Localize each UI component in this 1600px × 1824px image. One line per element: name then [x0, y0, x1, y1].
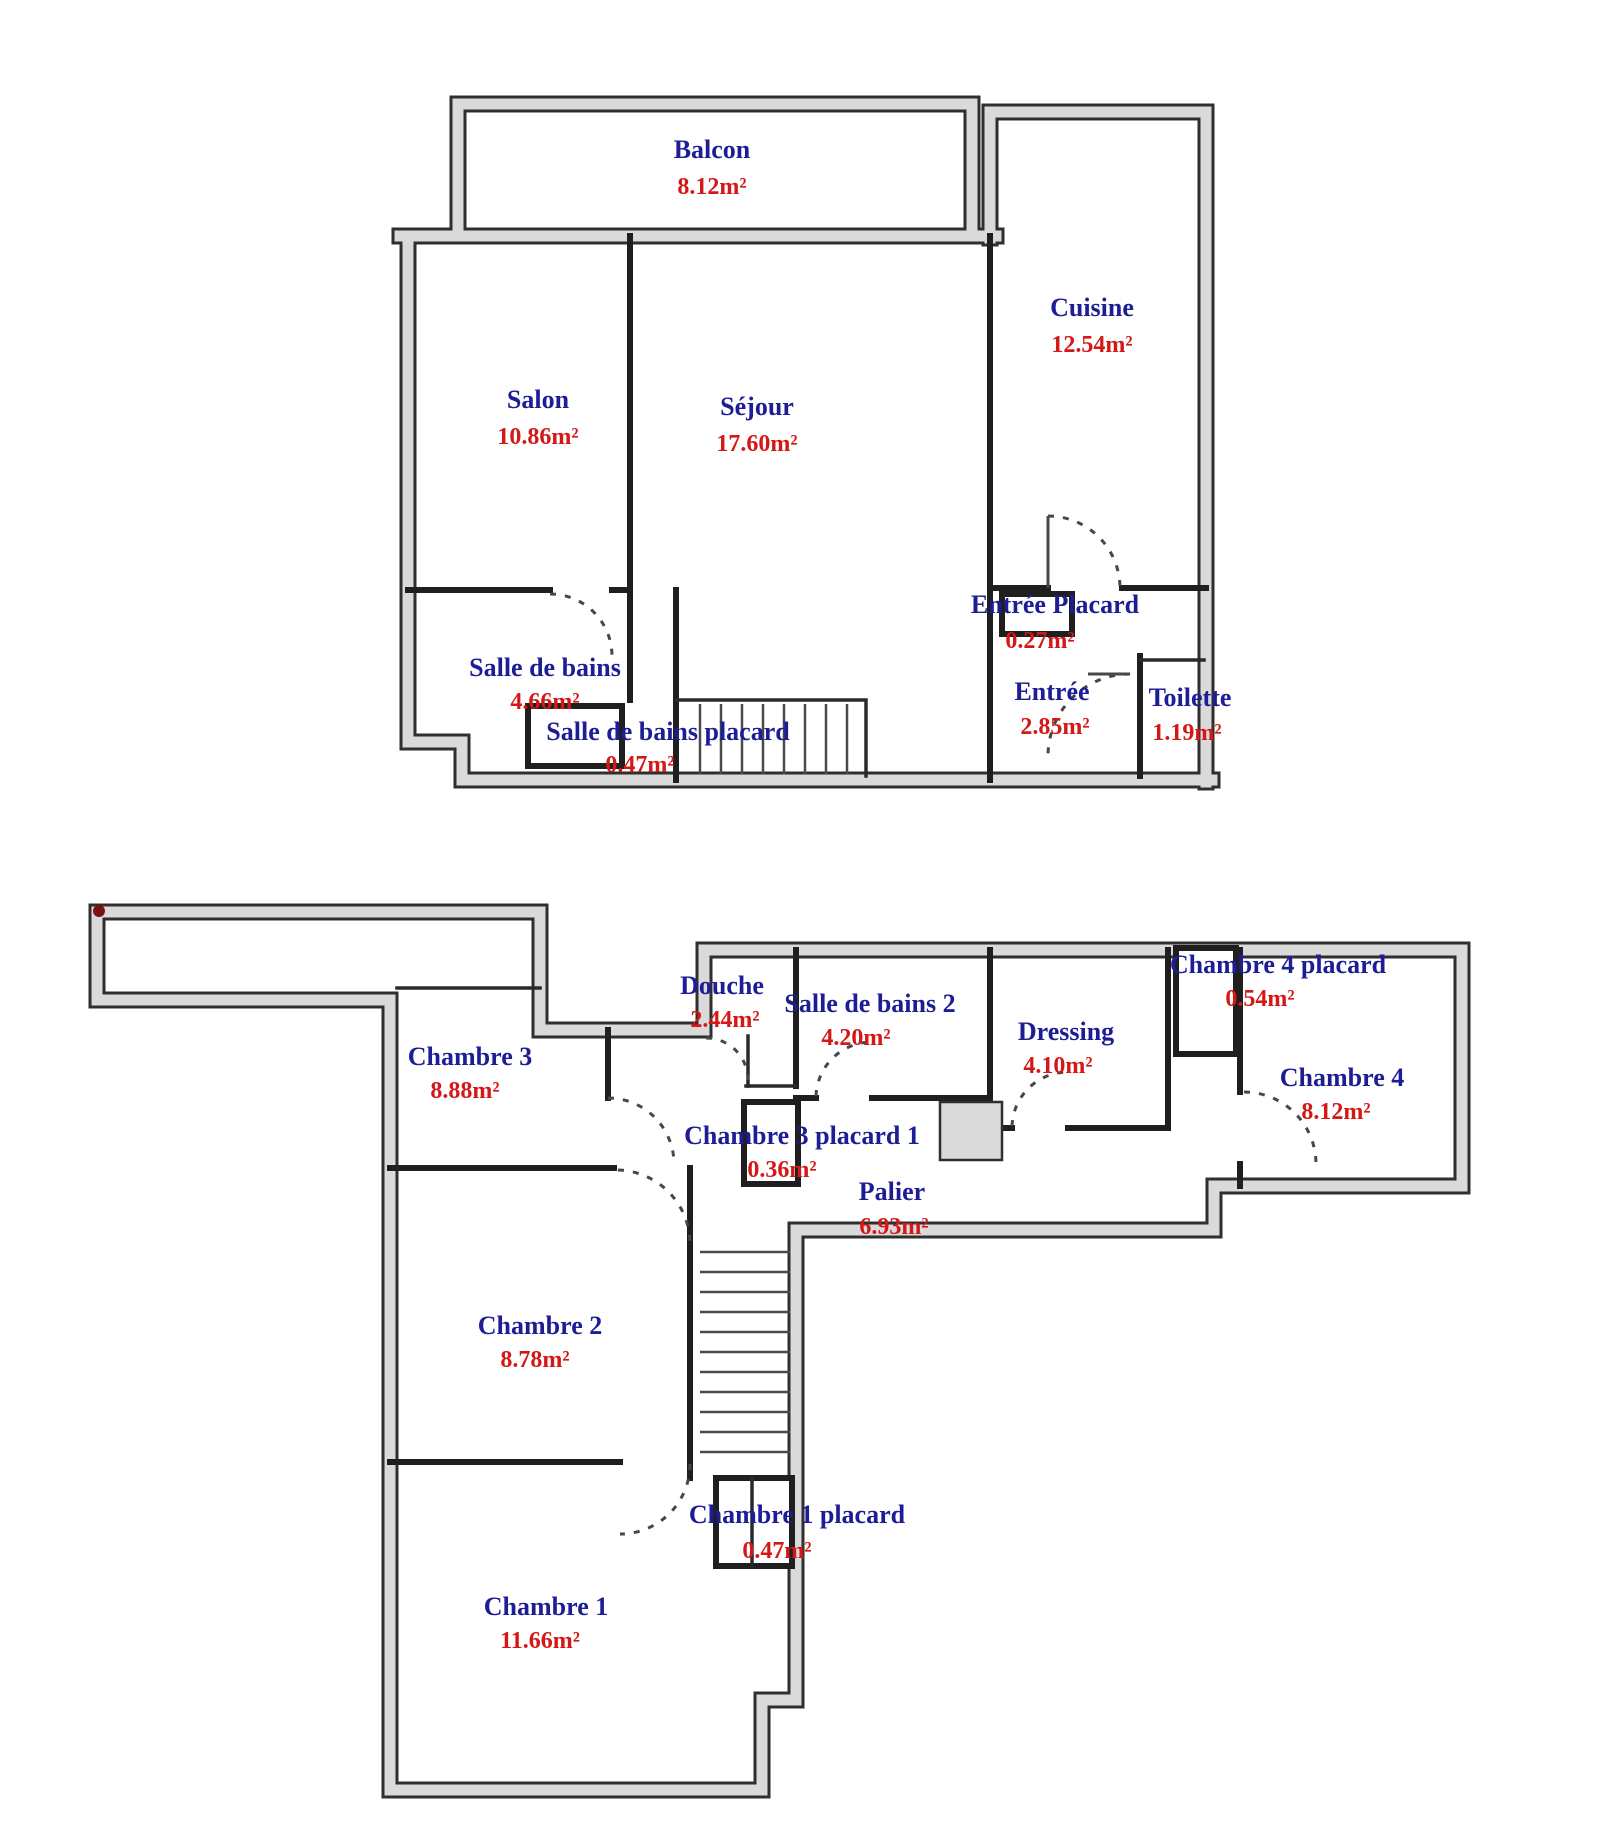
floor-plan-canvas: Balcon 8.12m² Salon 10.86m² Séjour 17.60…	[0, 0, 1600, 1824]
room-label-chambre-1-placard: Chambre 1 placard	[689, 1500, 906, 1529]
room-label-salle-de-bains-2: Salle de bains 2	[784, 989, 955, 1018]
room-label-toilette: Toilette	[1149, 683, 1232, 712]
room-area-cuisine: 12.54m²	[1051, 332, 1132, 358]
balcony-outline	[458, 104, 972, 236]
room-label-chambre-4: Chambre 4	[1280, 1063, 1404, 1092]
survey-dot	[93, 905, 105, 917]
door-arc-dressing	[1012, 1072, 1068, 1126]
wall-chunk-palier	[940, 1102, 1002, 1160]
stairs-lower	[700, 1252, 790, 1452]
room-area-palier: 6.93m²	[859, 1214, 928, 1240]
room-label-chambre-3: Chambre 3	[408, 1042, 532, 1071]
door-arc-douche	[706, 1038, 748, 1080]
room-label-cuisine: Cuisine	[1050, 293, 1134, 322]
room-label-chambre-1: Chambre 1	[484, 1592, 608, 1621]
room-area-entree: 2.85m²	[1020, 714, 1089, 740]
room-label-chambre-2: Chambre 2	[478, 1311, 602, 1340]
room-area-toilette: 1.19m²	[1152, 720, 1221, 746]
room-area-salle-de-bains-2: 4.20m²	[821, 1025, 890, 1051]
room-label-entree: Entrée	[1014, 677, 1089, 706]
room-area-chambre-4: 8.12m²	[1301, 1099, 1370, 1125]
room-label-sejour: Séjour	[720, 392, 794, 421]
room-area-chambre-4-placard: 0.54m²	[1225, 986, 1294, 1012]
room-label-salon: Salon	[507, 385, 570, 414]
door-arc-salle-de-bains	[550, 594, 612, 656]
room-label-balcon: Balcon	[674, 135, 751, 164]
room-area-douche: 2.44m²	[690, 1007, 759, 1033]
room-label-chambre-3-placard-1: Chambre 3 placard 1	[684, 1121, 920, 1150]
lower-floor-plan: Chambre 3 8.88m² Douche 2.44m² Salle de …	[93, 905, 1462, 1790]
room-area-salle-de-bains: 4.66m²	[510, 689, 579, 715]
room-area-chambre-2: 8.78m²	[500, 1347, 569, 1373]
room-area-chambre-3-placard-1: 0.36m²	[747, 1157, 816, 1183]
room-label-salle-de-bains-placard: Salle de bains placard	[546, 717, 790, 746]
room-area-chambre-1-placard: 0.47m²	[742, 1538, 811, 1564]
room-area-salle-de-bains-placard: 0.47m²	[605, 752, 674, 778]
upper-floor-plan: Balcon 8.12m² Salon 10.86m² Séjour 17.60…	[400, 104, 1231, 782]
room-label-salle-de-bains: Salle de bains	[469, 653, 621, 682]
room-area-chambre-3: 8.88m²	[430, 1078, 499, 1104]
door-arc-cuisine	[1048, 516, 1120, 588]
room-area-entree-placard: 0.27m²	[1005, 628, 1074, 654]
room-area-dressing: 4.10m²	[1023, 1053, 1092, 1079]
door-arc-chambre1	[620, 1464, 690, 1534]
room-label-palier: Palier	[859, 1177, 925, 1206]
room-label-entree-placard: Entrée Placard	[971, 590, 1140, 619]
room-label-douche: Douche	[680, 971, 764, 1000]
room-area-salon: 10.86m²	[497, 424, 578, 450]
room-area-balcon: 8.12m²	[677, 174, 746, 200]
door-arc-chambre3	[608, 1098, 674, 1164]
room-area-chambre-1: 11.66m²	[500, 1628, 580, 1654]
room-label-dressing: Dressing	[1018, 1017, 1114, 1046]
room-area-sejour: 17.60m²	[716, 431, 797, 457]
floor-plan-document: Balcon 8.12m² Salon 10.86m² Séjour 17.60…	[0, 0, 1600, 1824]
room-label-chambre-4-placard: Chambre 4 placard	[1170, 950, 1387, 979]
door-arc-chambre2	[618, 1170, 690, 1242]
